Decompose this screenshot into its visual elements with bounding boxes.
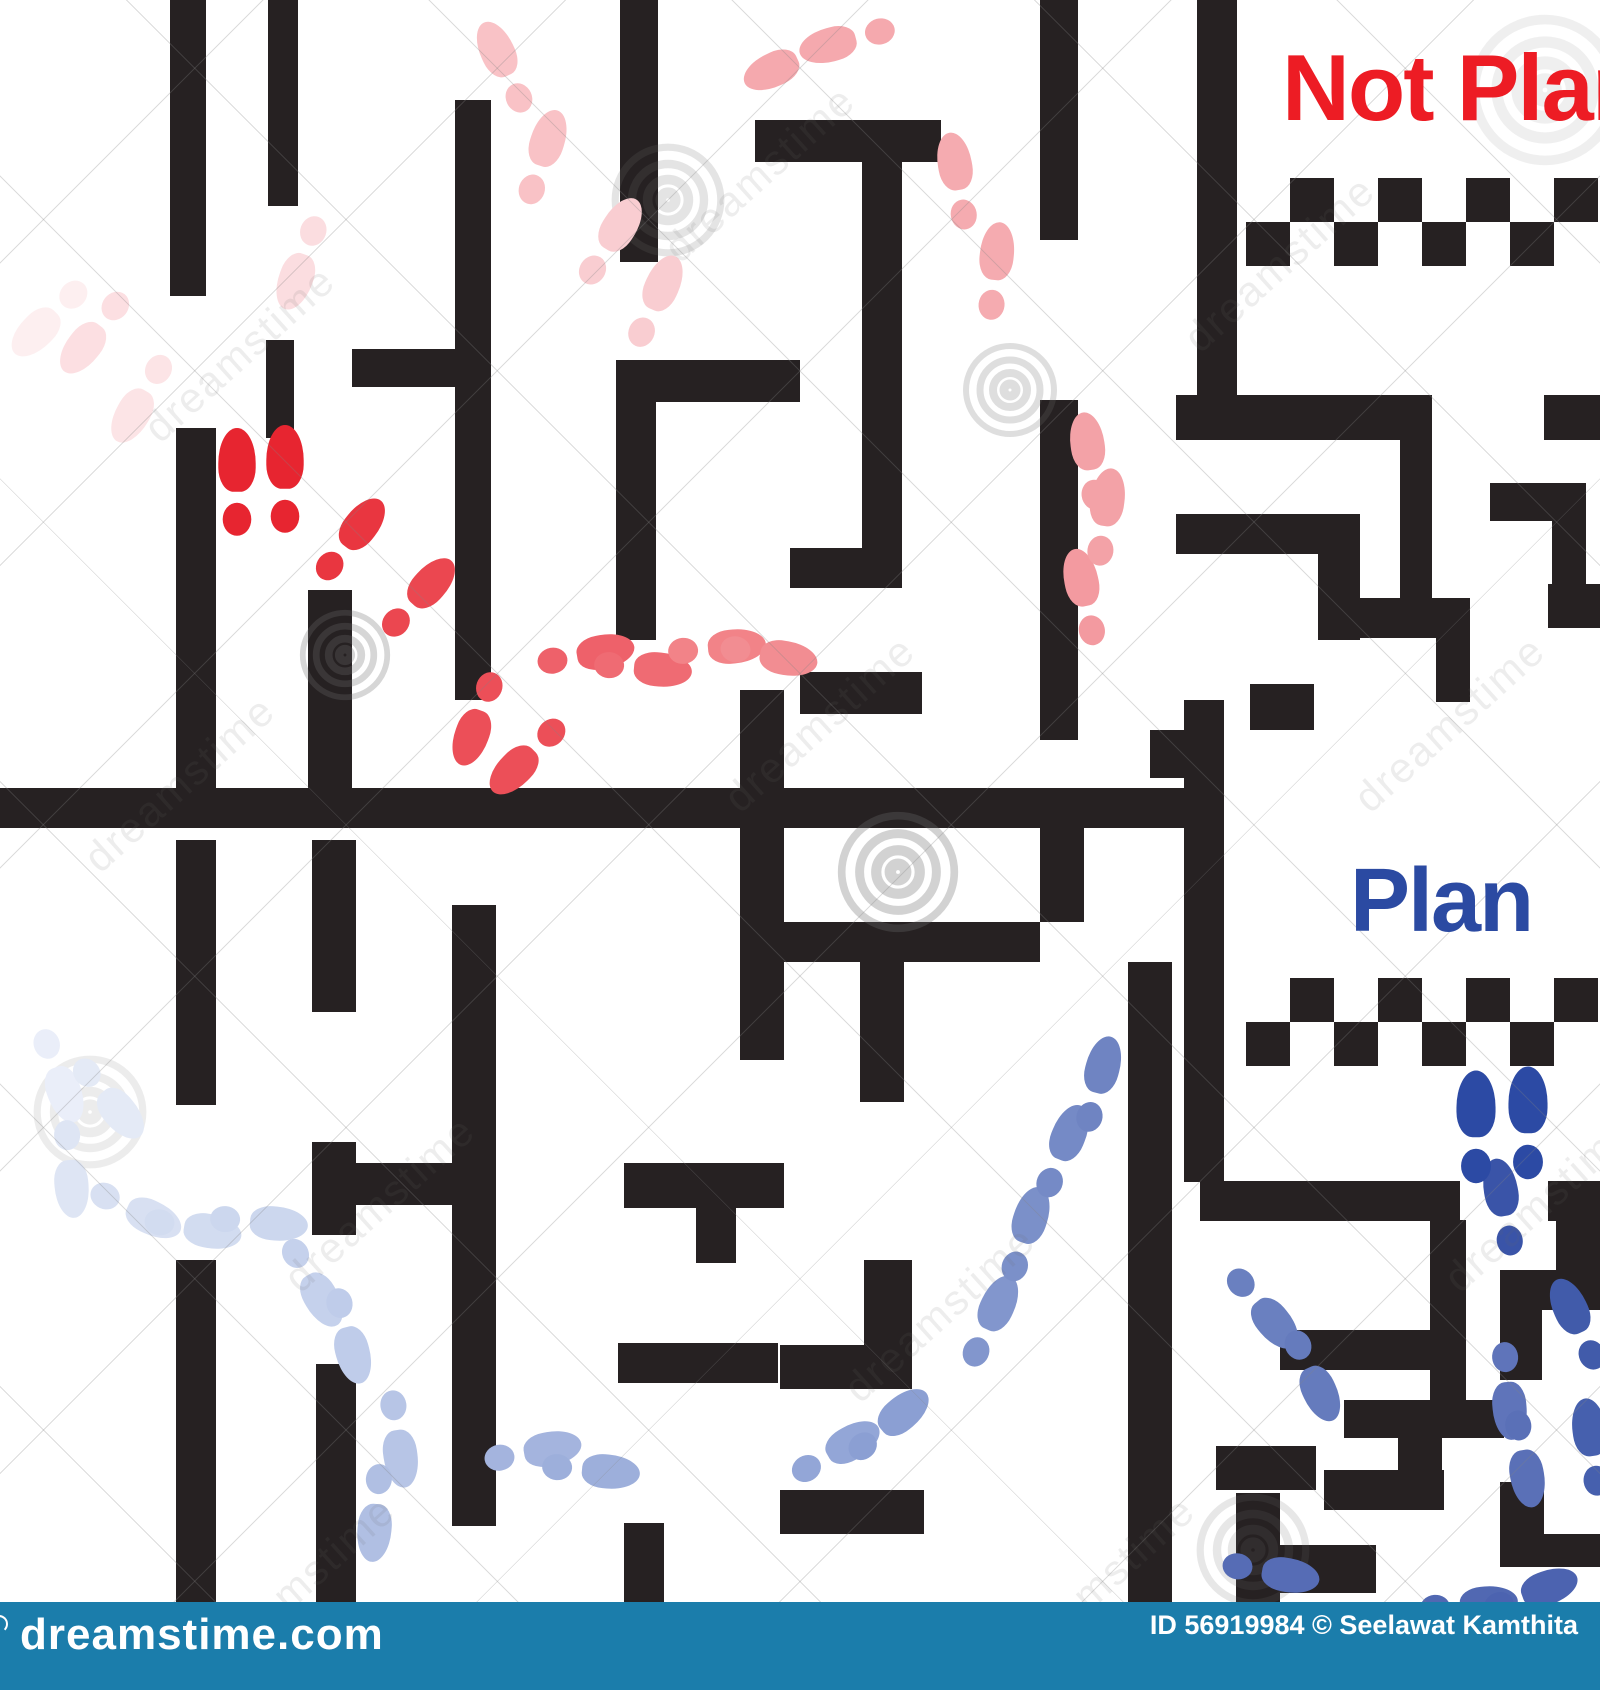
footprint-heel — [977, 289, 1006, 322]
top-maze-wall — [616, 360, 800, 402]
footprint-heel — [96, 286, 135, 326]
finish-line-square — [1554, 978, 1598, 1022]
dreamstime-logo: dreamstime.com — [16, 1610, 384, 1660]
image-credit-text: ID 56919984 © Seelawat Kamthita — [1150, 1610, 1578, 1641]
footprint-sole — [1568, 1396, 1600, 1458]
blue-footprint — [1068, 1032, 1129, 1138]
footprint-sole — [468, 16, 523, 83]
logo-text: dreamstime.com — [20, 1610, 384, 1659]
footprint-sole — [1508, 1067, 1547, 1134]
footprint-sole — [738, 43, 805, 98]
footprint-sole — [332, 490, 395, 557]
footprint-heel — [142, 1207, 176, 1238]
finish-line-square — [1246, 1022, 1290, 1066]
footprint-heel — [718, 634, 752, 665]
footprint-heel — [501, 79, 537, 117]
red-footprint — [371, 549, 465, 647]
footprint-heel — [378, 1389, 408, 1422]
logo-spiral-icon — [0, 1615, 8, 1633]
finish-line-square — [1554, 178, 1598, 222]
footprint-sole — [218, 428, 255, 492]
top-maze-wall — [455, 100, 491, 700]
red-footprint — [716, 629, 821, 682]
footprint-heel — [574, 250, 612, 289]
bottom-maze-wall — [312, 840, 356, 1012]
footprint-heel — [667, 637, 699, 666]
bottom-maze-wall — [780, 922, 1040, 962]
footprint-heel — [1280, 1326, 1316, 1364]
footprint-heel — [624, 313, 660, 351]
maze-illustration: dreamstimedreamstimedreamstimedreamstime… — [0, 0, 1600, 1690]
top-maze-wall — [1400, 440, 1432, 600]
footprint-heel — [948, 197, 979, 231]
footprint-heel — [1574, 1336, 1600, 1374]
footprint-heel — [862, 15, 898, 48]
blue-footprint — [539, 1448, 642, 1493]
footprint-heel — [787, 1450, 826, 1488]
top-maze-wall — [170, 0, 206, 296]
top-maze-wall — [1176, 514, 1360, 554]
footprint-heel — [1221, 1263, 1260, 1303]
red-footprint — [305, 490, 395, 591]
footprint-sole — [90, 1081, 153, 1147]
bottom-maze-wall — [452, 905, 496, 1526]
bottom-maze-wall — [624, 1523, 664, 1604]
footprint-heel — [1582, 1464, 1600, 1497]
red-footprint — [795, 10, 901, 71]
footprint-heel — [296, 212, 331, 249]
footprint-heel — [541, 1453, 573, 1482]
blue-footprint — [1455, 1071, 1496, 1186]
top-maze-wall — [1176, 395, 1432, 440]
bottom-maze-wall — [696, 1208, 736, 1263]
red-footprint — [217, 428, 257, 538]
footprint-heel — [1080, 478, 1110, 511]
footprint-heel — [472, 668, 507, 705]
finish-line-square — [1378, 978, 1422, 1022]
footprint-heel — [958, 1333, 994, 1371]
footprint-heel — [209, 1205, 241, 1234]
bottom-maze-wall — [1040, 818, 1084, 922]
finish-line-square — [1510, 1022, 1554, 1066]
top-maze-wall — [1318, 554, 1360, 640]
footprint-heel — [223, 503, 252, 536]
bottom-maze-wall — [618, 1343, 778, 1383]
footprint-heel — [1032, 1164, 1067, 1202]
top-maze-wall — [616, 402, 656, 640]
red-footprint — [509, 105, 574, 211]
top-maze-wall — [268, 0, 298, 206]
footprint-sole — [445, 705, 497, 771]
watermark-text: dreamstime — [655, 76, 865, 272]
footprint-sole — [1293, 1361, 1348, 1428]
footprint-sole — [581, 1452, 642, 1491]
blue-footprint — [1507, 1067, 1548, 1182]
top-maze-wall — [1250, 684, 1314, 730]
top-maze-wall — [1184, 700, 1224, 1182]
top-maze-wall — [790, 548, 902, 588]
finish-line-square — [1290, 978, 1334, 1022]
bottom-maze-wall — [176, 1260, 216, 1604]
footprint-heel — [310, 546, 349, 586]
footprint-heel — [532, 713, 572, 753]
red-footprint — [932, 130, 985, 235]
bottom-maze-wall — [1544, 1534, 1600, 1567]
footprint-heel — [482, 1442, 516, 1473]
top-maze-wall — [352, 349, 488, 387]
footprint-sole — [1080, 1032, 1128, 1097]
footprint-sole — [1506, 1447, 1550, 1510]
bottom-maze-wall — [1216, 1446, 1316, 1490]
footprint-heel — [1503, 1408, 1534, 1442]
footprint-heel — [1491, 1341, 1520, 1373]
finish-line-square — [1422, 1022, 1466, 1066]
footprint-sole — [1066, 410, 1108, 472]
footprint-heel — [53, 1119, 82, 1151]
footprint-sole — [1456, 1071, 1495, 1138]
bottom-maze-wall — [780, 1490, 924, 1534]
red-footprint — [265, 425, 305, 535]
footprint-sole — [52, 1159, 91, 1220]
footprint-heel — [1220, 1551, 1254, 1582]
footprint-heel — [29, 1025, 64, 1062]
finish-line-square — [1466, 978, 1510, 1022]
footprint-sole — [795, 22, 860, 70]
top-maze-wall — [1360, 598, 1470, 638]
footprint-heel — [271, 500, 300, 533]
footprint-sole — [933, 130, 977, 193]
finish-line-square — [1466, 178, 1510, 222]
blue-footprint — [1567, 1396, 1600, 1500]
stock-info-bar: dreamstime.com ID 56919984 © Seelawat Ka… — [0, 1602, 1600, 1690]
finish-line-square — [1334, 1022, 1378, 1066]
footprint-heel — [593, 651, 625, 680]
footprint-heel — [54, 275, 94, 315]
footprint-sole — [757, 637, 820, 681]
footprint-sole — [523, 105, 573, 171]
footprint-heel — [515, 171, 549, 208]
footprint-heel — [1461, 1149, 1491, 1184]
bottom-maze-wall — [1200, 1181, 1460, 1221]
footprint-sole — [977, 220, 1017, 281]
top-maze-wall — [1040, 0, 1078, 240]
top-maze-wall — [308, 590, 352, 788]
footprint-heel — [1085, 534, 1115, 567]
top-maze-wall — [1544, 395, 1600, 440]
red-footprint — [972, 220, 1018, 323]
finish-line-square — [1510, 222, 1554, 266]
footprint-heel — [1076, 613, 1108, 648]
bottom-maze-wall — [860, 962, 904, 1102]
footprint-sole — [266, 425, 303, 489]
top-maze-wall — [1548, 584, 1600, 628]
plan-title: Plan — [1350, 850, 1532, 953]
top-maze-wall — [862, 162, 902, 548]
not-plan-title: Not Plan — [1282, 34, 1600, 142]
footprint-heel — [86, 1178, 124, 1214]
bottom-maze-wall — [1344, 1400, 1504, 1438]
finish-line-square — [1422, 222, 1466, 266]
footprint-heel — [376, 603, 415, 643]
bottom-maze-wall — [176, 840, 216, 1105]
bottom-maze-wall — [624, 1163, 784, 1208]
bottom-maze-wall — [1324, 1470, 1444, 1510]
footprint-heel — [1073, 1099, 1106, 1135]
top-maze-wall — [1552, 483, 1586, 591]
finish-line-square — [1378, 178, 1422, 222]
footprint-heel — [535, 645, 569, 676]
footprint-heel — [323, 1285, 356, 1321]
